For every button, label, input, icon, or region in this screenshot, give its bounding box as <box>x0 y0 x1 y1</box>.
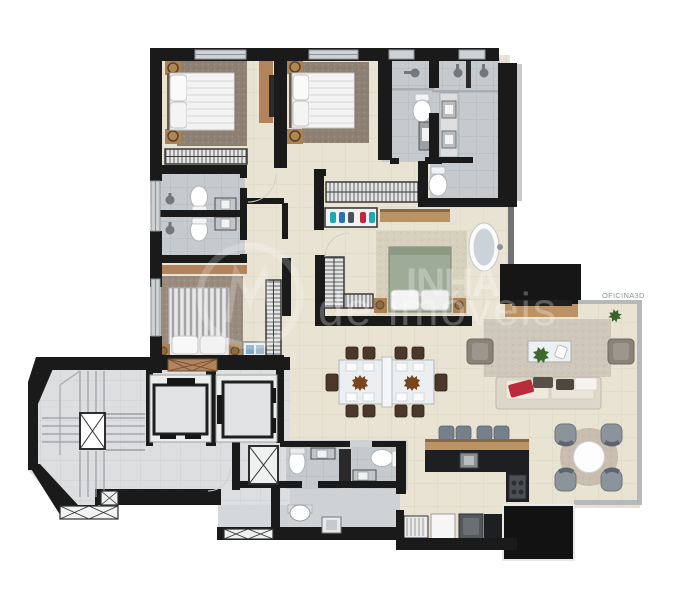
svg-text:OFICINA3D: OFICINA3D <box>602 291 645 300</box>
svg-text:de imóveis: de imóveis <box>318 283 558 335</box>
